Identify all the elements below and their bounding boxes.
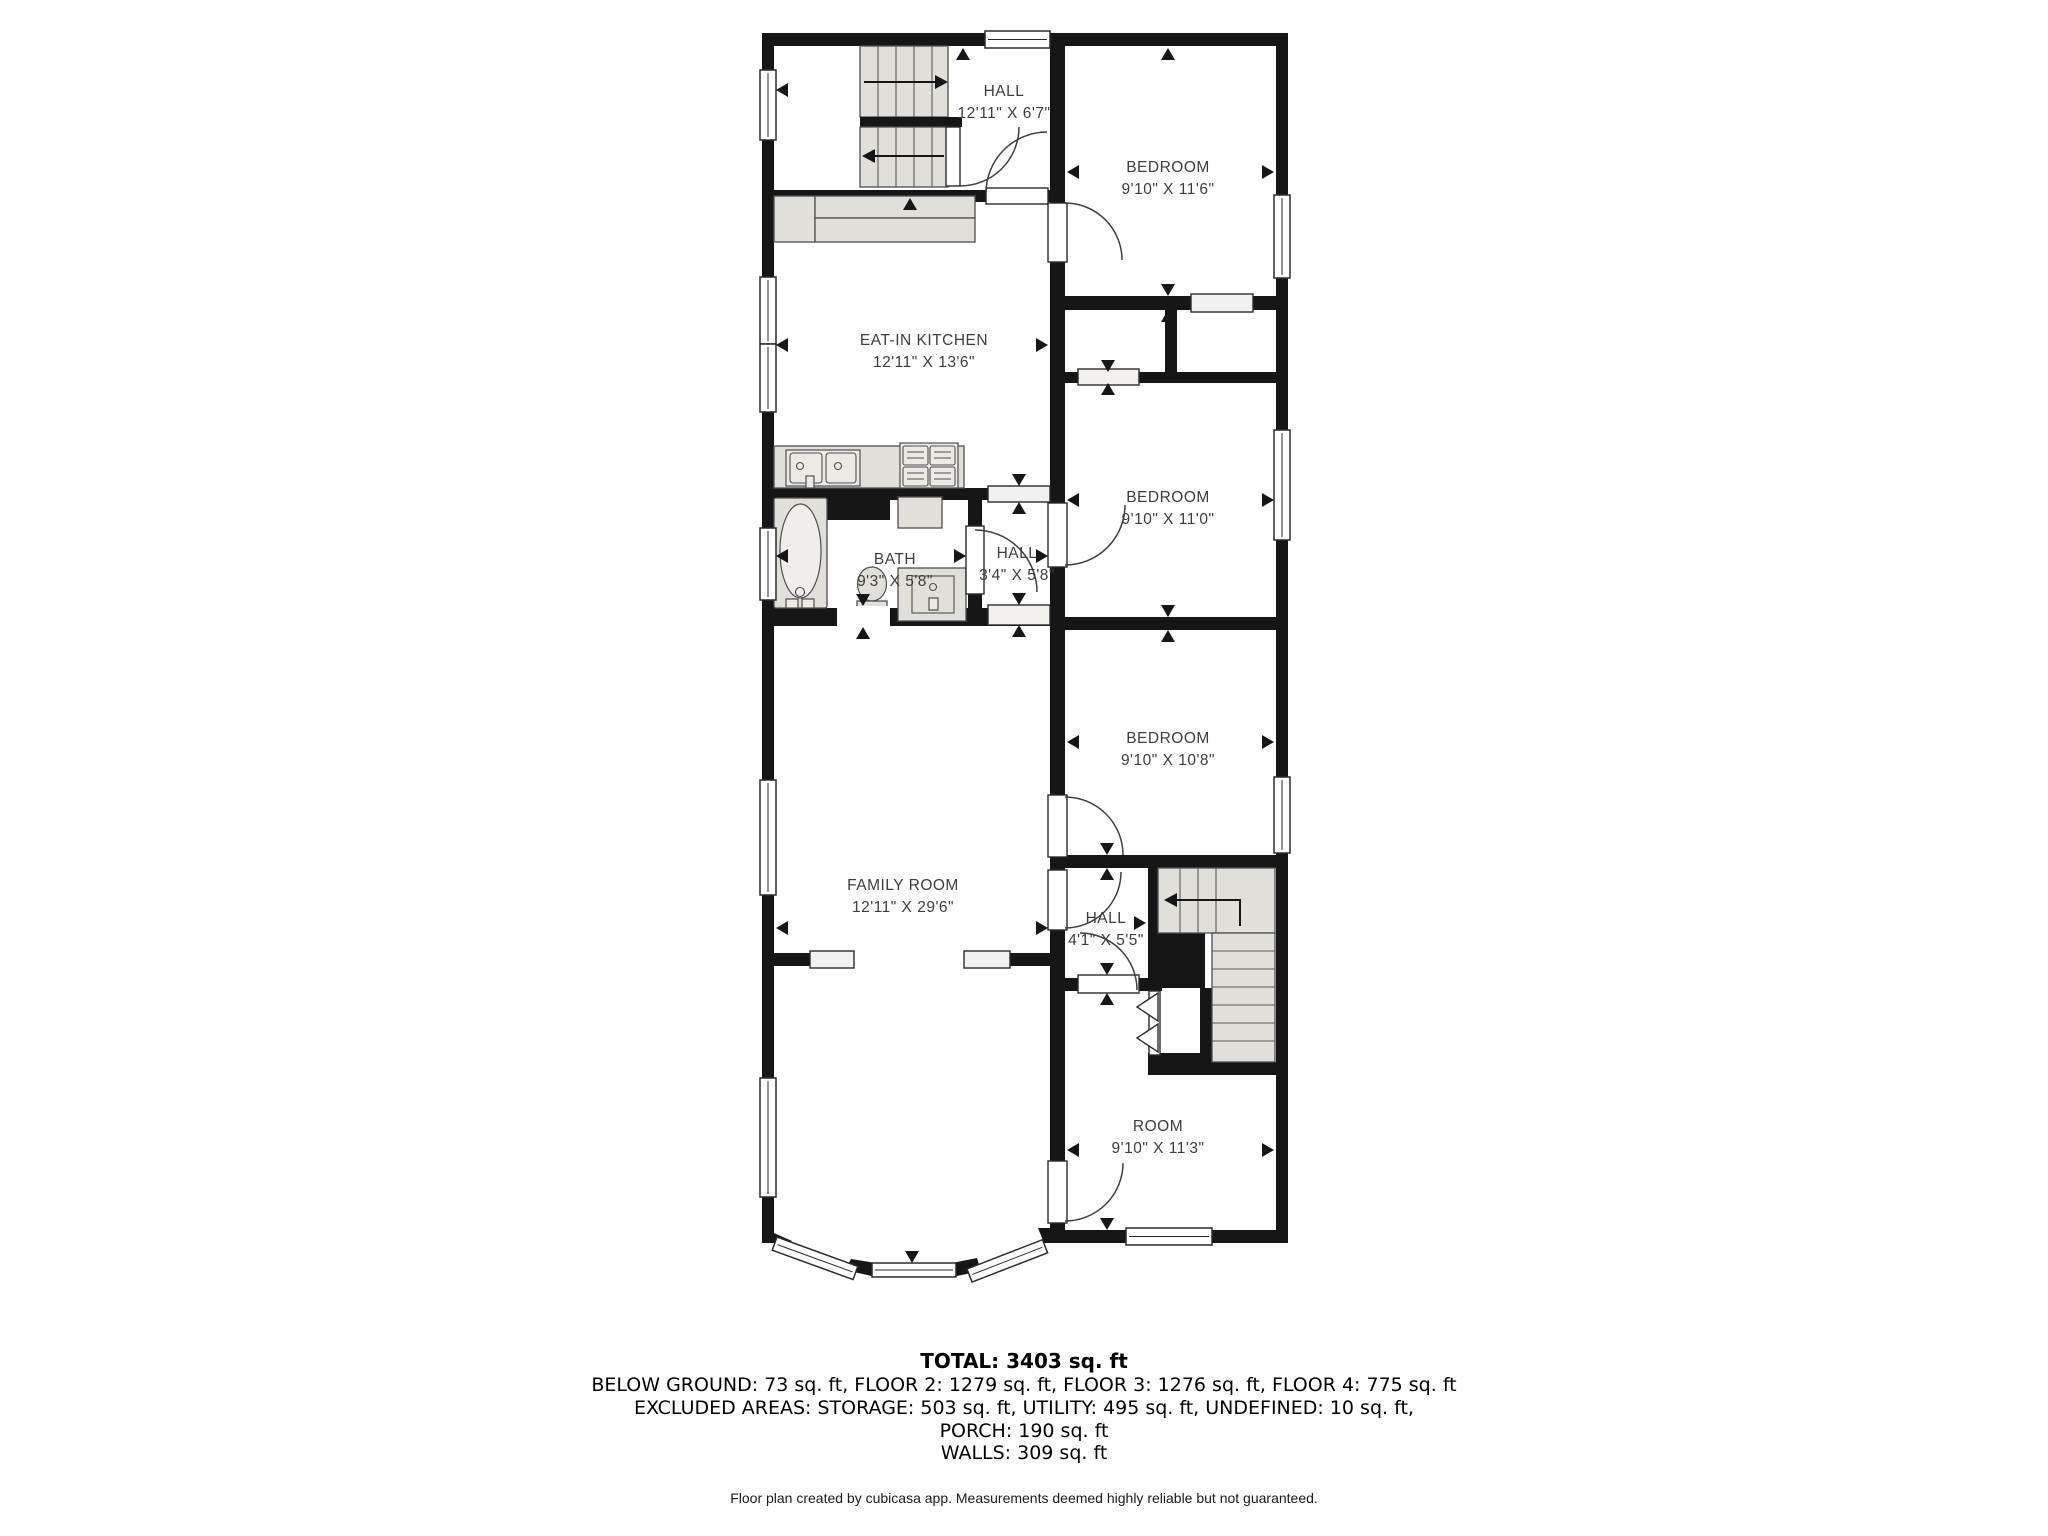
window-icon xyxy=(985,31,1050,48)
room-name: EAT-IN KITCHEN xyxy=(860,332,988,349)
room-label-room: ROOM 9'10" X 11'3" xyxy=(1112,1118,1205,1157)
room-dims: 9'10" X 11'6" xyxy=(1122,181,1215,198)
summary-floors: BELOW GROUND: 73 sq. ft, FLOOR 2: 1279 s… xyxy=(591,1374,1456,1396)
room-name: BATH xyxy=(874,551,916,568)
window-icon xyxy=(1126,1228,1212,1245)
room-label-bedroom-2: BEDROOM 9'10" X 11'0" xyxy=(1122,489,1215,528)
footer-note: Floor plan created by cubicasa app. Meas… xyxy=(730,1490,1318,1506)
door-bedroom-1 xyxy=(1048,203,1122,262)
window-icon xyxy=(1274,777,1290,853)
room-name: ROOM xyxy=(1133,1118,1183,1135)
window-icon xyxy=(760,780,776,895)
window-icon xyxy=(760,277,776,344)
door-bedroom-2 xyxy=(1048,503,1125,567)
summary-excluded-areas: EXCLUDED AREAS: STORAGE: 503 sq. ft, UTI… xyxy=(634,1397,1414,1419)
room-dims: 9'3" X 5'8" xyxy=(857,573,933,590)
room-name: FAMILY ROOM xyxy=(847,877,959,894)
room-dims: 4'1" X 5'5" xyxy=(1068,932,1144,949)
room-name: HALL xyxy=(984,83,1025,100)
bath-cabinet-icon xyxy=(898,497,942,528)
room-label-hall-bottom: HALL 4'1" X 5'5" xyxy=(1068,910,1144,949)
room-dims: 9'10" X 10'8" xyxy=(1121,752,1215,769)
room-label-hall-top: HALL 12'11" X 6'7" xyxy=(958,83,1051,122)
room-name: HALL xyxy=(1086,910,1127,927)
door-bedroom-3 xyxy=(1048,795,1123,857)
room-name: BEDROOM xyxy=(1126,730,1210,747)
room-dims: 9'10" X 11'3" xyxy=(1112,1140,1205,1157)
stove-icon xyxy=(900,443,958,488)
room-dims: 9'10" X 11'0" xyxy=(1122,511,1215,528)
door-stairs-top xyxy=(946,127,1019,186)
room-dims: 12'11" X 6'7" xyxy=(958,105,1051,122)
room-label-kitchen: EAT-IN KITCHEN 12'11" X 13'6" xyxy=(860,332,988,371)
window-icon xyxy=(760,528,776,600)
floor-plan-canvas: HALL 12'11" X 6'7" BEDROOM 9'10" X 11'6"… xyxy=(0,0,2048,1536)
window-icon xyxy=(760,70,776,140)
room-label-family-room: FAMILY ROOM 12'11" X 29'6" xyxy=(847,877,959,916)
room-label-hall-mid: HALL 3'4" X 5'8" xyxy=(979,545,1055,584)
room-name: BEDROOM xyxy=(1126,489,1210,506)
summary-total: TOTAL: 3403 sq. ft xyxy=(920,1349,1128,1373)
window-icon xyxy=(1274,195,1290,278)
area-summary: TOTAL: 3403 sq. ft BELOW GROUND: 73 sq. … xyxy=(591,1349,1456,1464)
room-name: HALL xyxy=(997,545,1038,562)
summary-porch: PORCH: 190 sq. ft xyxy=(940,1420,1109,1442)
summary-walls: WALLS: 309 sq. ft xyxy=(941,1442,1108,1464)
room-dims: 12'11" X 13'6" xyxy=(873,354,975,371)
bay-window-icon xyxy=(772,1237,858,1280)
window-icon xyxy=(1274,430,1290,540)
kitchen-sink-icon xyxy=(786,450,860,488)
room-dims: 3'4" X 5'8" xyxy=(979,567,1055,584)
window-icon xyxy=(760,1078,776,1197)
bay-window-icon xyxy=(872,1263,956,1277)
room-name: BEDROOM xyxy=(1126,159,1210,176)
bay-window-icon xyxy=(967,1240,1048,1282)
door-room xyxy=(1048,1161,1123,1223)
window-icon xyxy=(760,344,776,412)
room-label-bedroom-3: BEDROOM 9'10" X 10'8" xyxy=(1121,730,1215,769)
room-label-bedroom-1: BEDROOM 9'10" X 11'6" xyxy=(1122,159,1215,198)
room-dims: 12'11" X 29'6" xyxy=(852,899,954,916)
